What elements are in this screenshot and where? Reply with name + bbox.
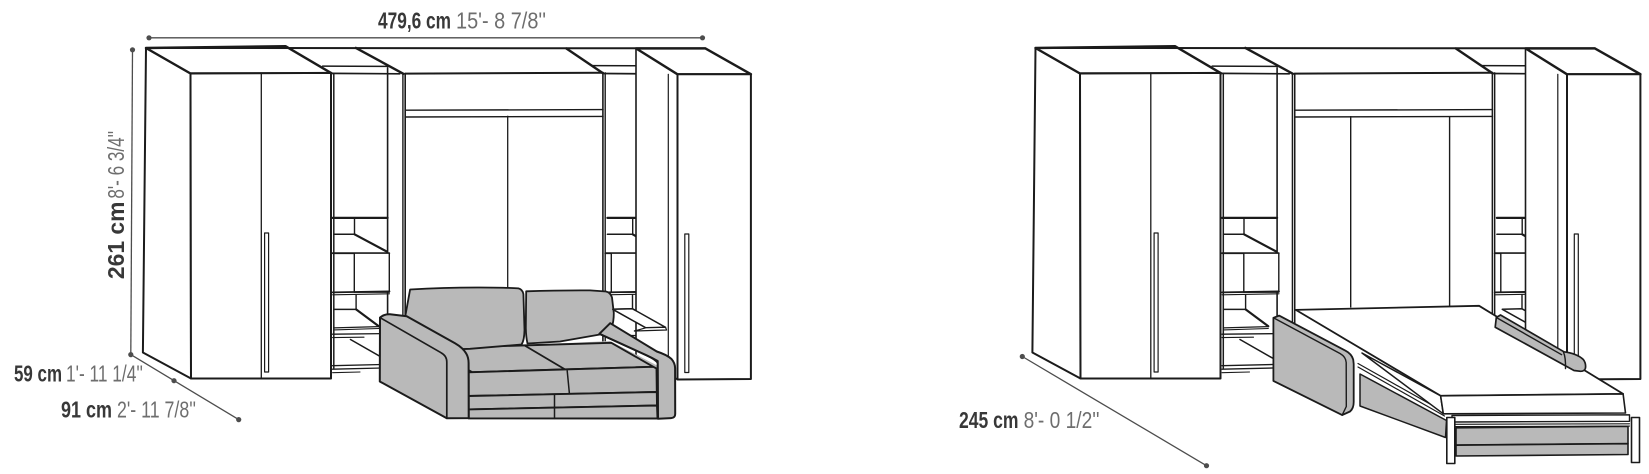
svg-text:15'- 8 7/8'': 15'- 8 7/8'' [456, 8, 546, 34]
svg-text:1'- 11 1/4'': 1'- 11 1/4'' [66, 361, 143, 387]
svg-text:8'- 0 1/2'': 8'- 0 1/2'' [1024, 407, 1100, 433]
svg-text:91 cm: 91 cm [61, 397, 112, 423]
svg-text:479,6 cm: 479,6 cm [378, 8, 451, 34]
svg-text:59 cm: 59 cm [14, 361, 62, 387]
svg-text:8'- 6 3/4'': 8'- 6 3/4'' [103, 131, 129, 199]
svg-text:261 cm: 261 cm [103, 202, 129, 280]
svg-text:245 cm: 245 cm [959, 407, 1019, 433]
svg-text:2'- 11 7/8'': 2'- 11 7/8'' [117, 397, 196, 423]
